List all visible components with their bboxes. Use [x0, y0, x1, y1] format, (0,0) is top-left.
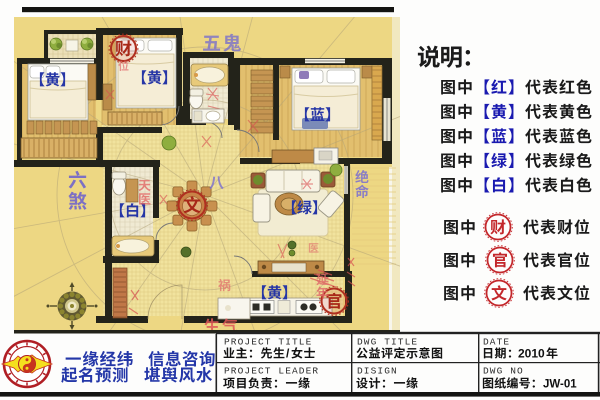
- svg-text:JW-01: JW-01: [543, 379, 577, 391]
- svg-text:PROJECT LEADER: PROJECT LEADER: [224, 366, 319, 377]
- svg-text:DWG NO: DWG NO: [483, 366, 524, 377]
- svg-text:DATE: DATE: [483, 337, 510, 348]
- svg-text:DISIGN: DISIGN: [357, 366, 398, 377]
- svg-text:DWG TITLE: DWG TITLE: [357, 337, 418, 348]
- svg-text:PROJECT TITLE: PROJECT TITLE: [224, 337, 312, 348]
- svg-text:2010: 2010: [518, 347, 545, 361]
